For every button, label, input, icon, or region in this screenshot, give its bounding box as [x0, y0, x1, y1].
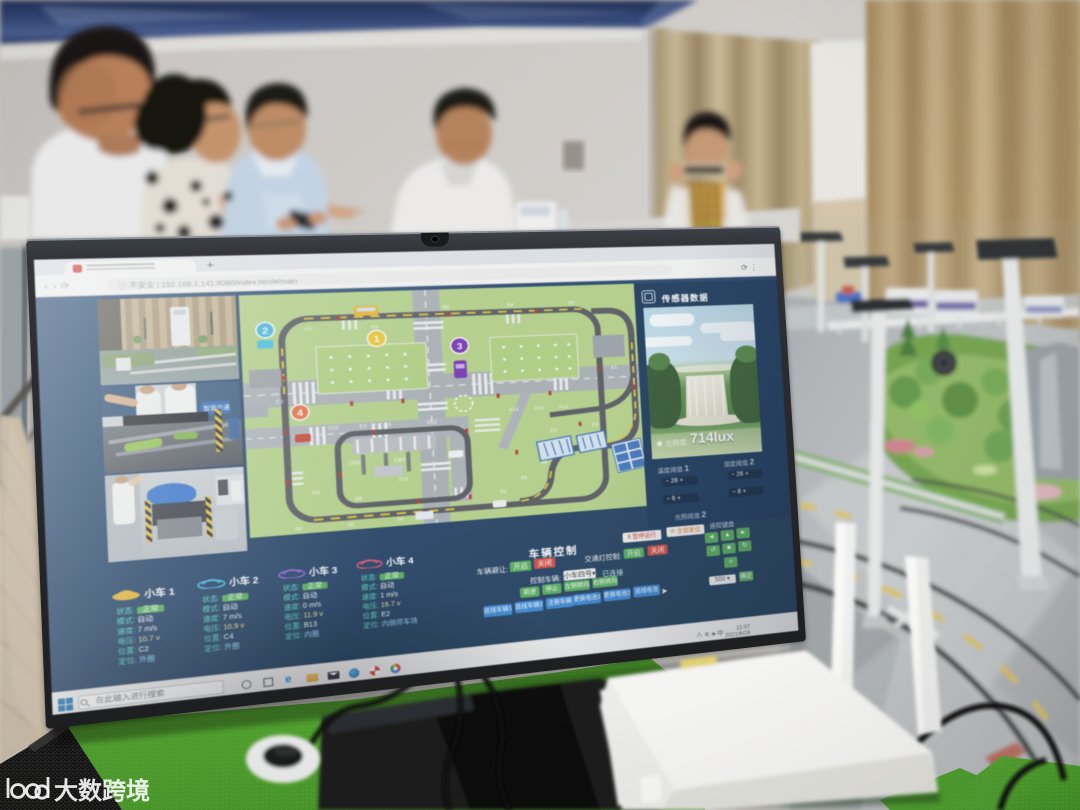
svg-text:大数跨境: 大数跨境 [54, 777, 150, 805]
